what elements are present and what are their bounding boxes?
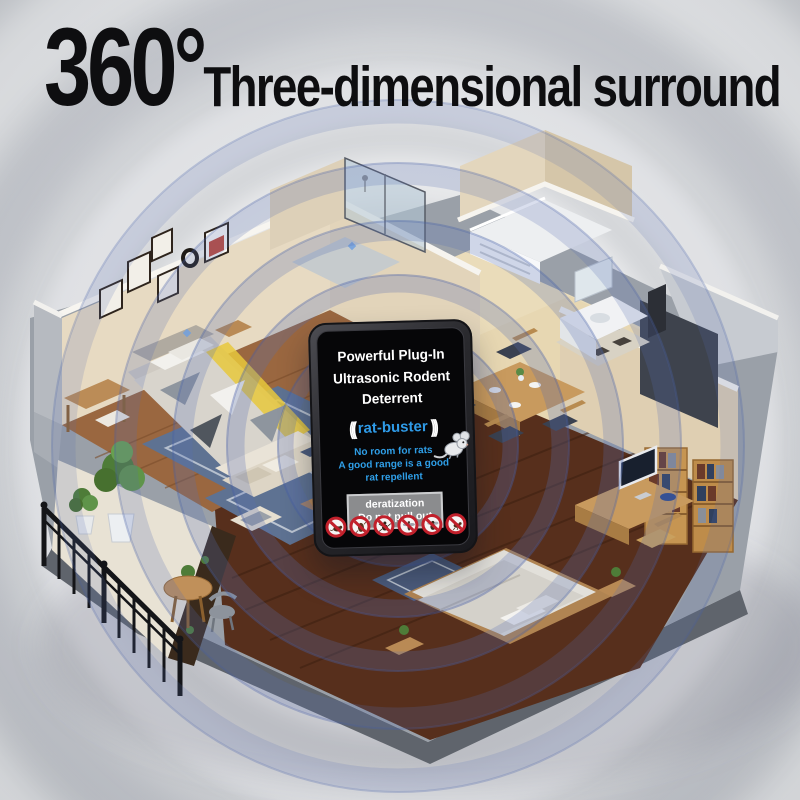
no-fly-icon: [421, 514, 443, 536]
degree-text: 360°: [44, 5, 203, 131]
no-rat-icon: [325, 516, 347, 538]
sound-waves-left-icon: (((: [349, 418, 355, 440]
no-mosquito-icon: [397, 514, 419, 536]
no-spider-icon: [373, 515, 395, 537]
device-screen: Powerful Plug-In Ultrasonic Rodent Deter…: [316, 327, 470, 549]
device-title-line1: Powerful Plug-In: [332, 343, 450, 368]
headline-text: Three-dimensional surround: [203, 55, 780, 119]
no-cockroach-icon: [349, 516, 371, 538]
repeller-device: Powerful Plug-In Ultrasonic Rodent Deter…: [308, 319, 478, 557]
brand-name: rat-buster: [357, 418, 427, 437]
device-title-line2: Ultrasonic Rodent: [333, 365, 451, 390]
headline: 360°Three-dimensional surround: [44, 10, 780, 131]
brand-row: ((( rat-buster ))): [349, 418, 436, 437]
device-title-line3: Deterrent: [333, 387, 451, 412]
prohibited-pests-row: [322, 513, 469, 538]
no-flea-icon: [445, 513, 467, 535]
advertisement: 360°Three-dimensional surround Powerful …: [0, 0, 800, 800]
device-title: Powerful Plug-In Ultrasonic Rodent Deter…: [332, 343, 451, 411]
mouse-icon: [428, 424, 474, 467]
